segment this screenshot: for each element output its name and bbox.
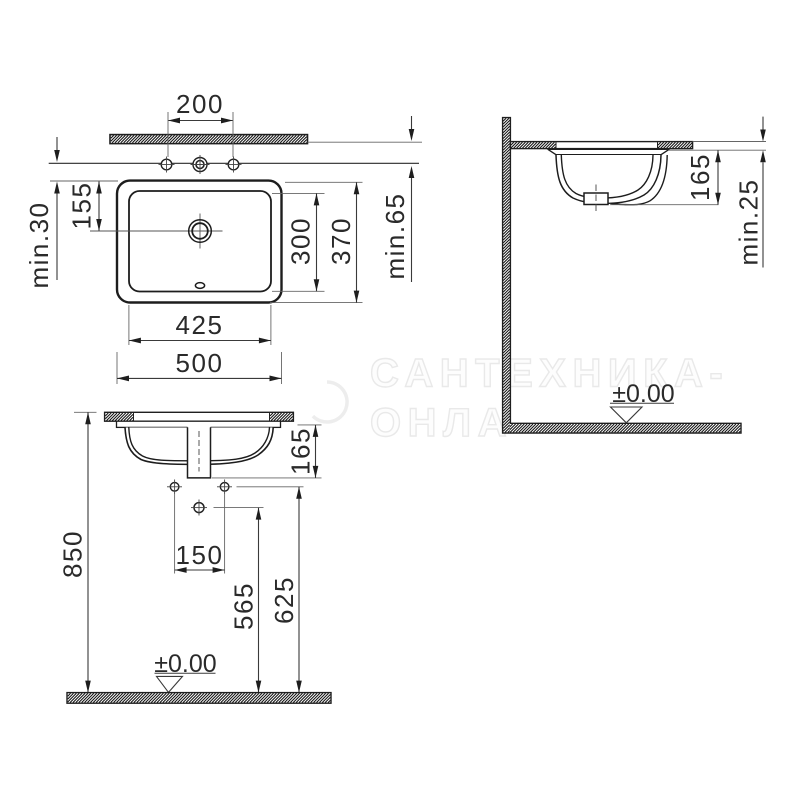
svg-text:min.30: min.30 bbox=[24, 201, 54, 288]
svg-text:САНТЕХНИКА-: САНТЕХНИКА- bbox=[370, 352, 729, 396]
svg-text:370: 370 bbox=[326, 217, 356, 265]
svg-text:min.65: min.65 bbox=[380, 192, 410, 279]
svg-text:500: 500 bbox=[176, 348, 224, 378]
svg-text:165: 165 bbox=[286, 427, 316, 475]
svg-text:850: 850 bbox=[58, 530, 88, 578]
svg-text:425: 425 bbox=[176, 310, 224, 340]
svg-text:155: 155 bbox=[67, 182, 97, 230]
svg-text:200: 200 bbox=[176, 89, 224, 119]
svg-text:565: 565 bbox=[229, 582, 259, 630]
svg-text:150: 150 bbox=[176, 540, 224, 570]
svg-text:625: 625 bbox=[269, 576, 299, 624]
svg-text:300: 300 bbox=[286, 217, 316, 265]
svg-text:165: 165 bbox=[685, 153, 715, 201]
svg-text:min.25: min.25 bbox=[734, 178, 764, 265]
